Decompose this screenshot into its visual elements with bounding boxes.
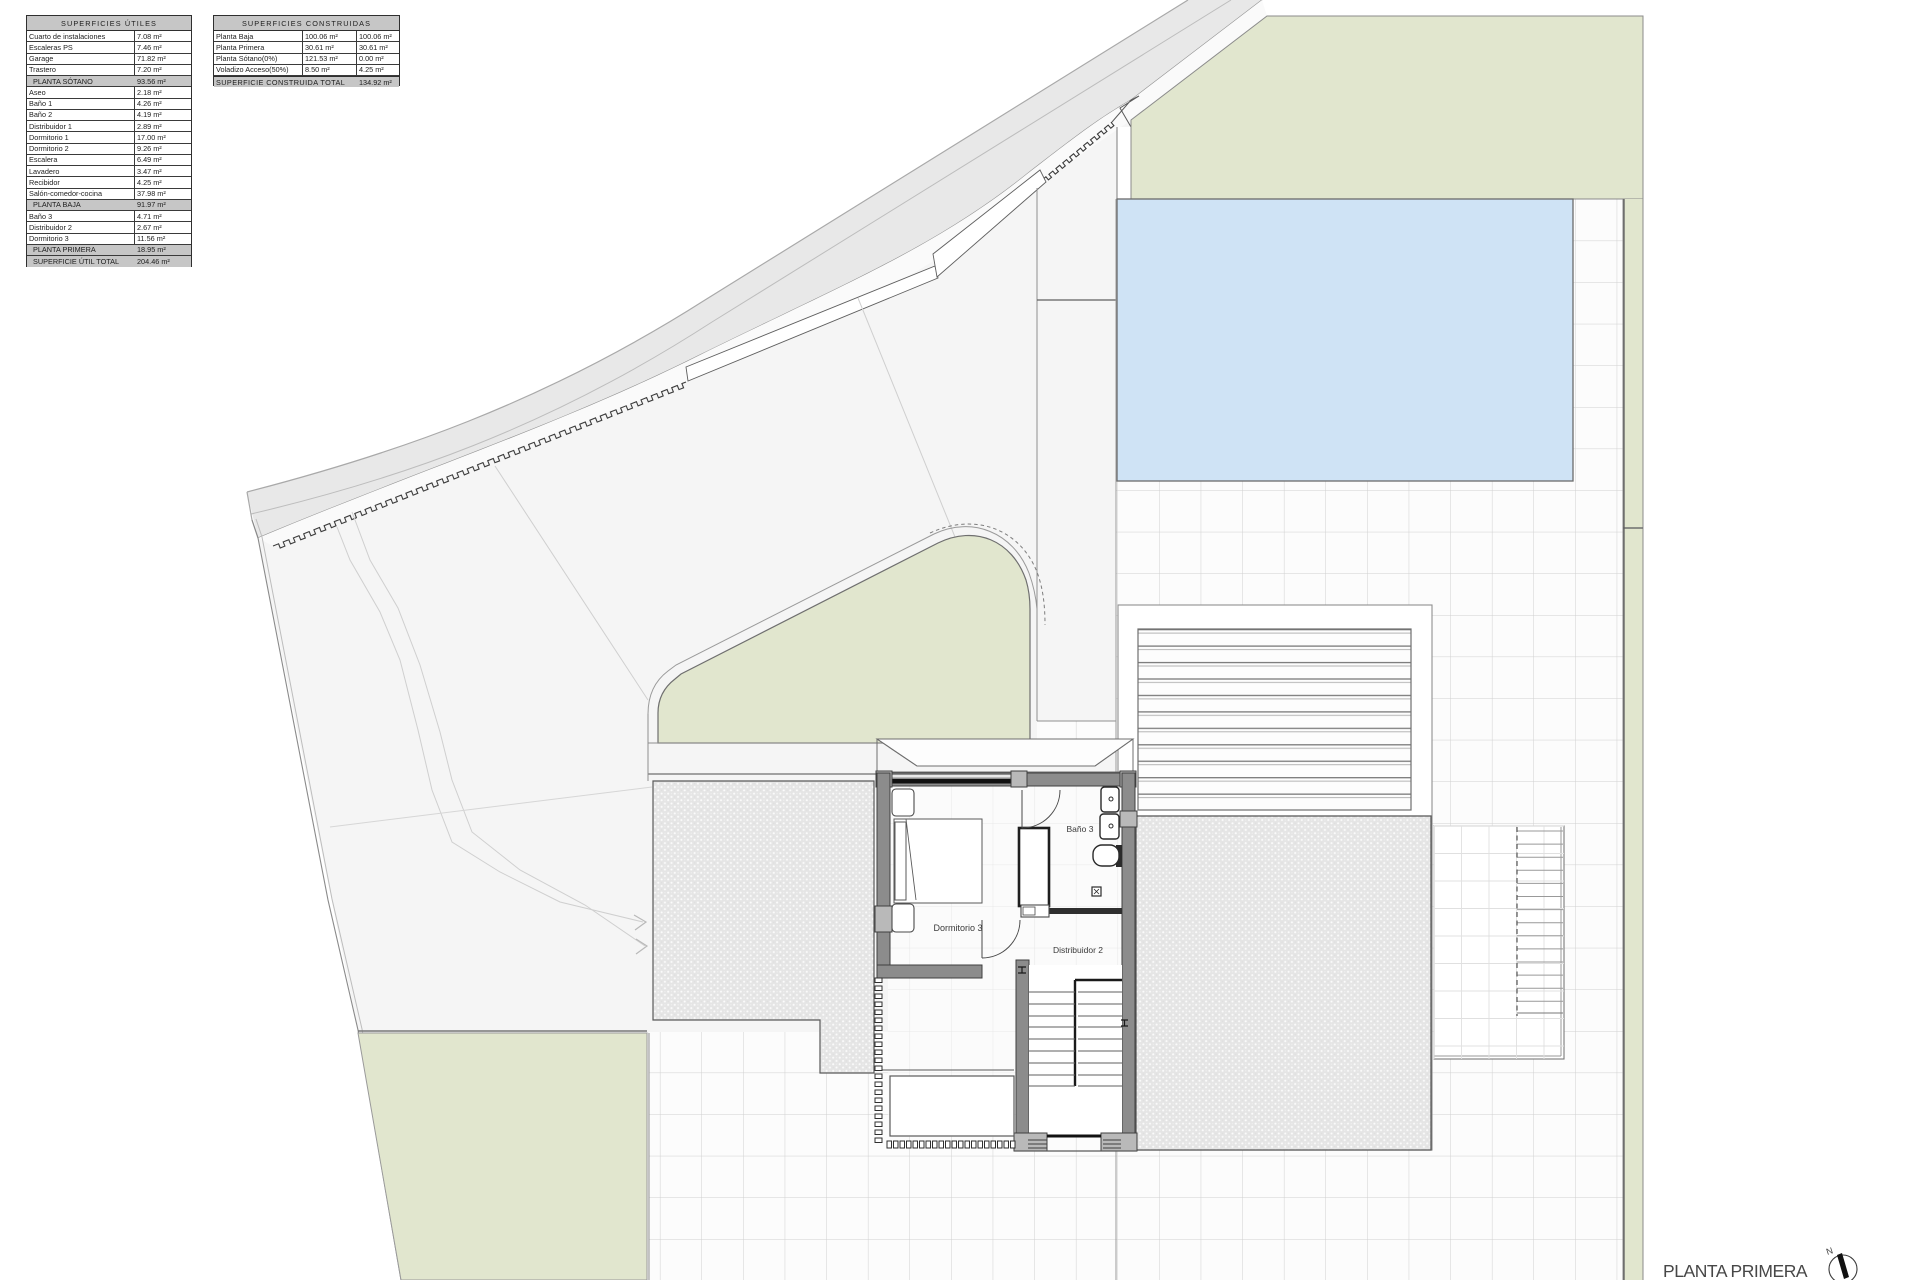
svg-text:Distribuidor 2: Distribuidor 2 — [1053, 945, 1103, 955]
svg-text:Baño 3: Baño 3 — [1067, 824, 1094, 834]
svg-text:Dormitorio 3: Dormitorio 3 — [933, 923, 982, 933]
svg-text:PLANTA PRIMERA: PLANTA PRIMERA — [1663, 1261, 1808, 1280]
